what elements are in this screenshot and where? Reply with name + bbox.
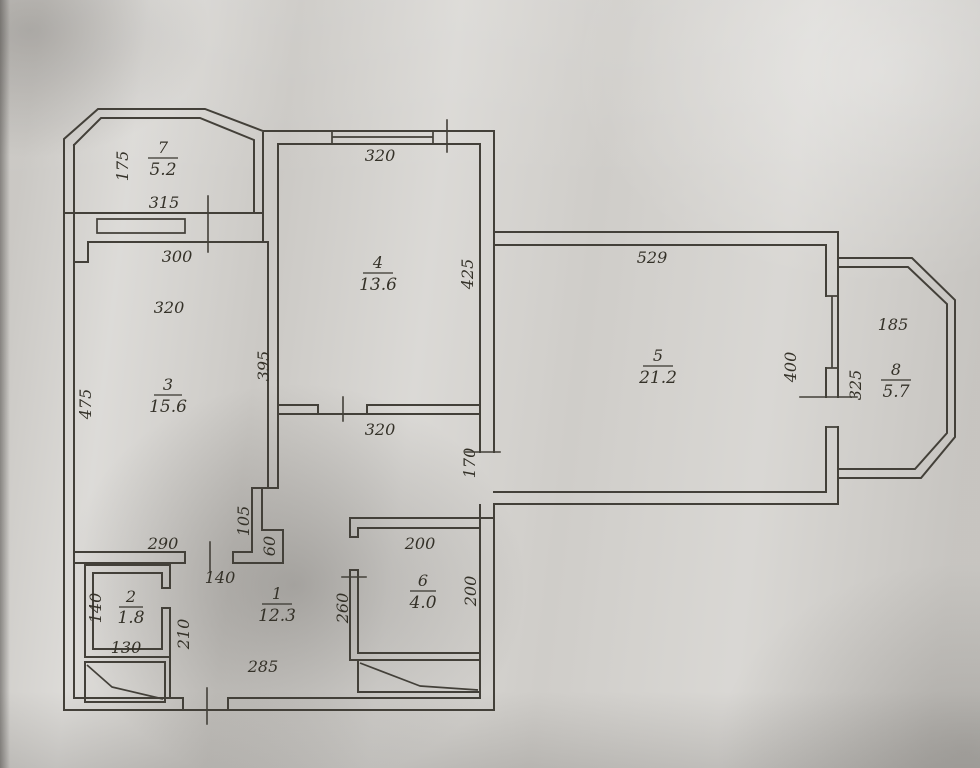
dim-285-room1: 285 [247, 657, 279, 676]
room4-number: 4 [372, 253, 383, 272]
dim-320-room4: 320 [365, 146, 396, 165]
dimension-labels: 175 315 300 320 475 395 290 320 425 320 … [76, 146, 908, 676]
dim-200-room6-right: 200 [461, 576, 480, 608]
dim-60-nook: 60 [260, 536, 279, 556]
dim-320-room3: 320 [154, 298, 185, 317]
room1-area: 12.3 [258, 606, 296, 626]
room2-area: 1.8 [117, 608, 144, 628]
room3-area: 15.6 [149, 397, 187, 417]
room7-number: 7 [158, 138, 169, 157]
dim-320-hall: 320 [365, 420, 396, 439]
dim-300-room3: 300 [162, 247, 193, 266]
room1-number: 1 [272, 584, 282, 603]
dim-105-nook: 105 [234, 506, 253, 537]
room4-area: 13.6 [359, 275, 397, 295]
dim-425-room4: 425 [458, 259, 477, 291]
dim-210-room1: 210 [174, 619, 193, 651]
dim-315-balcony7: 315 [149, 193, 180, 212]
room7-area: 5.2 [149, 160, 176, 180]
room6-number: 6 [418, 571, 428, 590]
room3-number: 3 [163, 375, 173, 394]
dim-395-room3: 395 [254, 351, 273, 382]
dim-130-room2: 130 [111, 638, 142, 657]
room8-area: 5.7 [882, 382, 909, 402]
dim-400-room5: 400 [781, 352, 800, 384]
dim-140-room2: 140 [86, 593, 105, 624]
dim-170-opening: 170 [460, 448, 479, 479]
room5-area: 21.2 [638, 368, 677, 388]
dim-529-room5: 529 [637, 248, 668, 267]
shaft-diagonals [87, 663, 478, 699]
dim-200-room6-top: 200 [404, 534, 436, 553]
room6-area: 4.0 [408, 593, 436, 613]
floorplan-photo: 1 12.3 2 1.8 3 15.6 4 13.6 5 21.2 6 4.0 … [0, 0, 980, 768]
dim-260-room6: 260 [333, 593, 352, 625]
dimension-ticks [207, 120, 857, 724]
dim-140-room1: 140 [205, 568, 236, 587]
walls [64, 109, 955, 710]
dim-325-balcony8: 325 [846, 370, 865, 401]
room2-number: 2 [125, 587, 136, 606]
dim-175-balcony7: 175 [113, 151, 132, 182]
room8-number: 8 [891, 360, 901, 379]
dim-290-room3: 290 [147, 534, 179, 553]
dim-475-room3: 475 [76, 389, 95, 421]
dim-185-balcony8: 185 [878, 315, 909, 334]
room5-number: 5 [653, 346, 663, 365]
floorplan-drawing: 1 12.3 2 1.8 3 15.6 4 13.6 5 21.2 6 4.0 … [0, 0, 980, 768]
